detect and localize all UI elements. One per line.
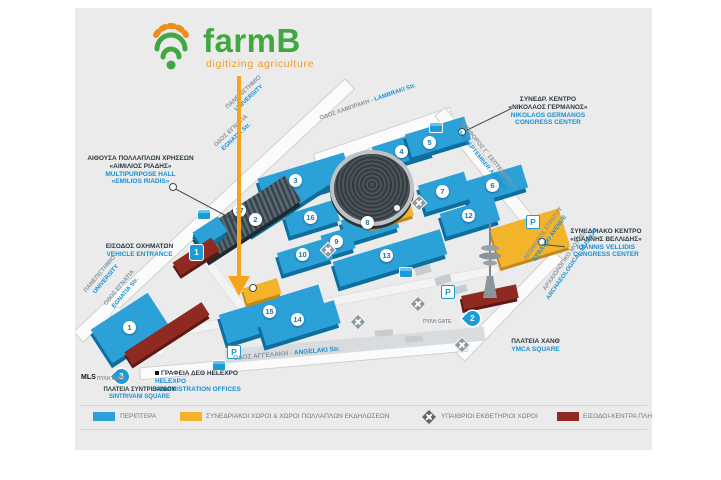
legend-outdoor-icon: [421, 409, 438, 426]
booth-pointer-arrowhead: [228, 276, 250, 296]
pavilion-badge-3: 3: [289, 174, 302, 187]
service-block: [414, 264, 432, 276]
pavilion-badge-16: 16: [304, 211, 317, 224]
pavilion-badge-12: 12: [462, 209, 475, 222]
connector-dot-central: [393, 204, 401, 212]
connector-dot-booth: [249, 284, 257, 292]
farmb-logo-icon: [148, 15, 194, 71]
legend-swatch-conference: [180, 412, 202, 421]
gate-2-label: ΠΥΛΗ GATE: [423, 319, 451, 325]
label-ymca-square: ΠΛΑΤΕΙΑ ΧΑΝΘ YMCA SQUARE: [483, 338, 588, 354]
parking-icon: P: [441, 285, 455, 299]
pavilion-badge-2: 2: [249, 213, 262, 226]
pavilion-badge-15: 15: [263, 305, 276, 318]
legend-label-entrances: ΕΙΣΟΔΟΙ-ΚΕΝΤΡΑ ΠΛΗΡΟΦΟΡΙΩΝ: [583, 412, 652, 421]
farmb-logo-subtitle: digitizing agriculture: [206, 58, 314, 70]
label-germanos-congress-center: ΣΥΝΕΔΡ. ΚΕΝΤΡΟ «ΝΙΚΟΛΑΟΣ ΓΕΡΜΑΝΟΣ» NIKOL…: [473, 96, 623, 127]
dome-building: [330, 150, 414, 226]
pavilion-badge-8: 8: [361, 216, 374, 229]
legend-swatch-entrances: [557, 412, 579, 421]
pavilion-badge-10: 10: [296, 248, 309, 261]
gate-3-label: ΠΥΛΗ GATE: [97, 376, 125, 382]
legend-label-outdoor: ΥΠΑΙΘΡΙΟΙ ΕΚΘΕΤΗΡΙΟΙ ΧΩΡΟΙ: [441, 412, 538, 421]
pavilion-badge-13: 13: [380, 249, 393, 262]
legend-swatch-pavilions: [93, 412, 115, 421]
label-multipurpose-hall: ΑΙΘΟΥΣΑ ΠΟΛΛΑΠΛΩΝ ΧΡΗΣΕΩΝ «ΑΙΜΙΛΙΟΣ ΡΙΑΔ…: [83, 155, 198, 186]
street-label-university-top: ΠΑΝΕΠΙΣΤΗΜΙΟ UNIVERSITY: [225, 75, 269, 117]
label-sintrivani-square: ΠΛΑΤΕΙΑ ΣΥΝΤΡΙΒΑΝΙΟΥ SINTRIVANI SQUARE: [87, 387, 192, 401]
screenshot-canvas: 1 17 2 3 4 5 6 7 8 9 10 12 13 14 15 16 P…: [0, 0, 721, 480]
farmb-logo-title: farmB: [203, 22, 301, 60]
ote-tower: [477, 218, 503, 302]
bus-stop-icon: [197, 209, 211, 220]
label-vehicle-entrance: ΕΙΣΟΔΟΣ ΟΧΗΜΑΤΩΝ VEHICLE ENTRANCE: [87, 243, 192, 259]
legend-label-pavilions: ΠΕΡΙΠΤΕΡΑ: [120, 412, 156, 421]
pavilion-badge-7: 7: [436, 185, 449, 198]
bus-stop-icon: [429, 122, 443, 133]
parking-icon: P: [526, 215, 540, 229]
legend-divider-bottom: [80, 429, 647, 430]
helexpo-site-map: 1 17 2 3 4 5 6 7 8 9 10 12 13 14 15 16 P…: [75, 8, 652, 450]
pavilion-badge-1: 1: [123, 321, 136, 334]
pavilion-badge-5: 5: [423, 136, 436, 149]
pavilion-badge-14: 14: [291, 313, 304, 326]
outdoor-space-icon: [410, 296, 427, 313]
outdoor-space-icon: [350, 314, 367, 331]
legend-divider-top: [80, 405, 647, 406]
legend-label-conference: ΣΥΝΕΔΡΙΑΚΟΙ ΧΩΡΟΙ & ΧΩΡΟΙ ΠΟΛΛΑΠΛΩΝ ΕΚΔΗ…: [206, 412, 389, 421]
mls-gate3-brand: MLS: [81, 374, 96, 381]
street-label-egnatia-top: ΟΔΟΣ ΕΓΝΑΤΙΑ EGNATIA Str.: [213, 114, 255, 155]
booth-pointer-line: [237, 76, 241, 277]
pavilion-badge-4: 4: [395, 145, 408, 158]
bullet-icon: [155, 371, 159, 375]
bus-stop-icon: [399, 267, 413, 278]
